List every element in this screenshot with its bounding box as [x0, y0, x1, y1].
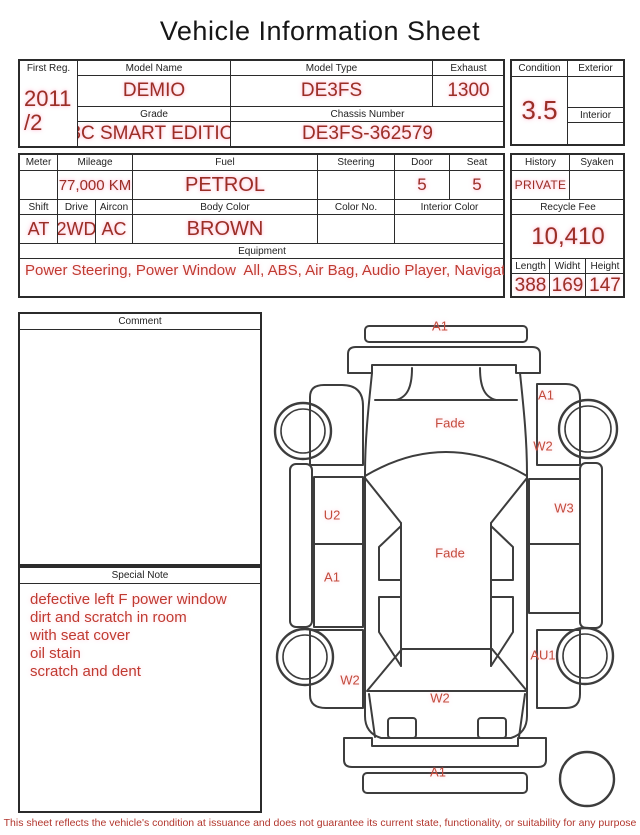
special-note-line: dirt and scratch in room: [30, 609, 250, 627]
drive-value: 2WD: [57, 214, 95, 243]
model-name-header: Model Name: [77, 61, 230, 75]
interior-color-header: Interior Color: [394, 199, 504, 214]
damage-label-right-front-fender: A1: [538, 388, 554, 403]
recycle-fee-header: Recycle Fee: [512, 199, 624, 214]
width-header: Widht: [549, 258, 585, 273]
fuel-value: PETROL: [132, 170, 317, 199]
damage-label-left-front-door: U2: [324, 508, 341, 523]
mileage-header: Mileage: [57, 155, 132, 170]
history-value: PRIVATE: [512, 170, 569, 199]
equipment-value: Power Steering, Power Window All, ABS, A…: [20, 258, 504, 297]
damage-label-roof: Fade: [435, 546, 465, 561]
door-value: 5: [394, 170, 449, 199]
damage-label-right-front-door: W2: [533, 439, 553, 454]
first-reg-month: /2: [24, 111, 42, 135]
comment-box: Comment: [18, 312, 262, 566]
condition-value: 3.5: [512, 76, 567, 144]
fuel-header: Fuel: [132, 155, 317, 170]
aircon-value: AC: [95, 214, 132, 243]
syaken-header: Syaken: [569, 155, 624, 170]
height-value: 147: [585, 273, 624, 297]
first-reg-year: 2011: [24, 87, 71, 111]
model-type-header: Model Type: [230, 61, 432, 75]
seat-header: Seat: [449, 155, 504, 170]
disclaimer-text: This sheet reflects the vehicle's condit…: [0, 817, 640, 829]
first-reg-header: First Reg.: [20, 61, 77, 75]
length-value: 388: [512, 273, 549, 297]
aircon-header: Aircon: [95, 199, 132, 214]
recycle-fee-value: 10,410: [512, 214, 624, 258]
interior-header: Interior: [567, 107, 623, 122]
wheels-shape: [275, 400, 617, 685]
special-note-line: with seat cover: [30, 627, 250, 645]
color-no-value: [317, 214, 394, 243]
history-table: History Syaken PRIVATE Recycle Fee 10,41…: [510, 153, 625, 298]
mileage-value: 77,000 KM: [57, 170, 132, 199]
length-header: Length: [512, 258, 549, 273]
interior-color-value: [394, 214, 504, 243]
roof-and-windows-shape: [365, 478, 527, 666]
height-header: Height: [585, 258, 624, 273]
condition-header: Condition: [512, 61, 567, 76]
special-note-line: defective left F power window: [30, 591, 250, 609]
damage-label-right-rear-door: W3: [554, 501, 574, 516]
special-note-body: defective left F power window dirt and s…: [20, 584, 260, 688]
steering-header: Steering: [317, 155, 394, 170]
special-note-line: scratch and dent: [30, 663, 250, 681]
car-outline-drawing: [268, 316, 640, 814]
body-color-value: BROWN: [132, 214, 317, 243]
body-color-header: Body Color: [132, 199, 317, 214]
comment-body: [20, 330, 260, 342]
chassis-number-header: Chassis Number: [230, 106, 504, 121]
car-damage-diagram: A1 Fade A1 W2 W3 U2 A1 Fade W2 AU1 W2 A1: [268, 316, 640, 814]
exterior-value: [567, 76, 623, 107]
damage-label-hood: Fade: [435, 416, 465, 431]
shift-header: Shift: [20, 199, 57, 214]
door-header: Door: [394, 155, 449, 170]
special-note-line: oil stain: [30, 645, 250, 663]
special-note-header: Special Note: [20, 568, 260, 584]
exhaust-header: Exhaust: [432, 61, 504, 75]
comment-header: Comment: [20, 314, 260, 330]
first-reg-value: 2011 /2: [20, 75, 77, 147]
syaken-value: [569, 170, 624, 199]
steering-value: [317, 170, 394, 199]
model-name-value: DEMIO: [77, 75, 230, 106]
exterior-header: Exterior: [567, 61, 623, 76]
damage-label-right-rear-fender: AU1: [530, 648, 555, 663]
history-header: History: [512, 155, 569, 170]
damage-label-rear-window: W2: [430, 691, 450, 706]
shift-value: AT: [20, 214, 57, 243]
seat-value: 5: [449, 170, 504, 199]
damage-label-rear-bumper: A1: [430, 765, 446, 780]
exhaust-value: 1300: [432, 75, 504, 106]
meter-header: Meter: [20, 155, 57, 170]
damage-label-left-rear-fender: W2: [340, 673, 360, 688]
registration-table: First Reg. 2011 /2 Model Name Model Type…: [18, 59, 505, 148]
spare-tire-shape: [560, 752, 614, 806]
meter-value: [20, 170, 57, 199]
chassis-number-value: DE3FS-362579: [230, 121, 504, 146]
grade-value: 13C SMART EDITION: [77, 121, 230, 146]
damage-label-left-rear-door: A1: [324, 570, 340, 585]
color-no-header: Color No.: [317, 199, 394, 214]
equipment-header: Equipment: [20, 243, 504, 258]
drive-header: Drive: [57, 199, 95, 214]
special-note-box: Special Note defective left F power wind…: [18, 566, 262, 813]
width-value: 169: [549, 273, 585, 297]
condition-table: Condition 3.5 Exterior Interior: [510, 59, 625, 146]
page-title: Vehicle Information Sheet: [0, 16, 640, 47]
model-type-value: DE3FS: [230, 75, 432, 106]
interior-value: [567, 122, 623, 144]
grade-header: Grade: [77, 106, 230, 121]
specs-table: Meter Mileage Fuel Steering Door Seat 77…: [18, 153, 505, 298]
damage-label-front-bumper: A1: [432, 319, 448, 334]
vehicle-information-sheet: Vehicle Information Sheet First Reg. 201…: [0, 0, 640, 835]
